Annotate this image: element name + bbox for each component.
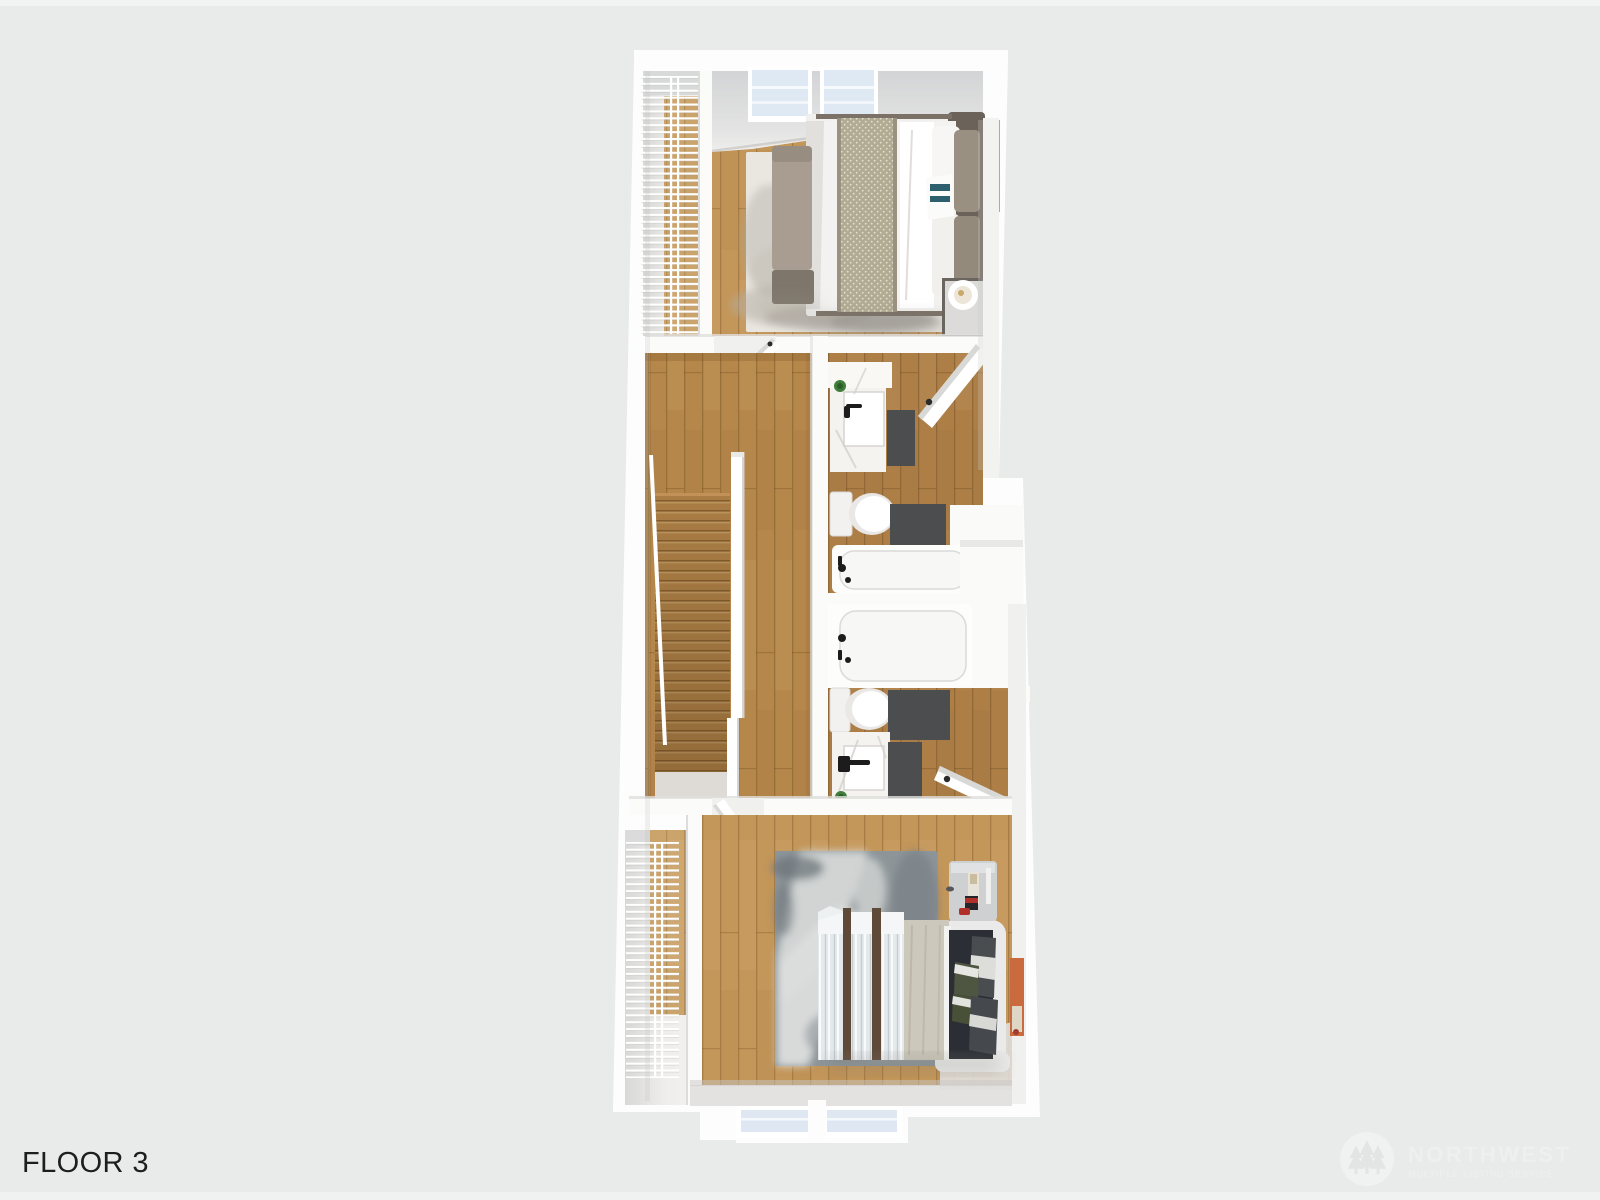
svg-text:FLOOR 3: FLOOR 3	[22, 1147, 149, 1179]
svg-text:NORTHWEST: NORTHWEST	[1408, 1142, 1571, 1167]
svg-text:MULTIPLE LISTING SERVICE.: MULTIPLE LISTING SERVICE.	[1408, 1169, 1557, 1179]
